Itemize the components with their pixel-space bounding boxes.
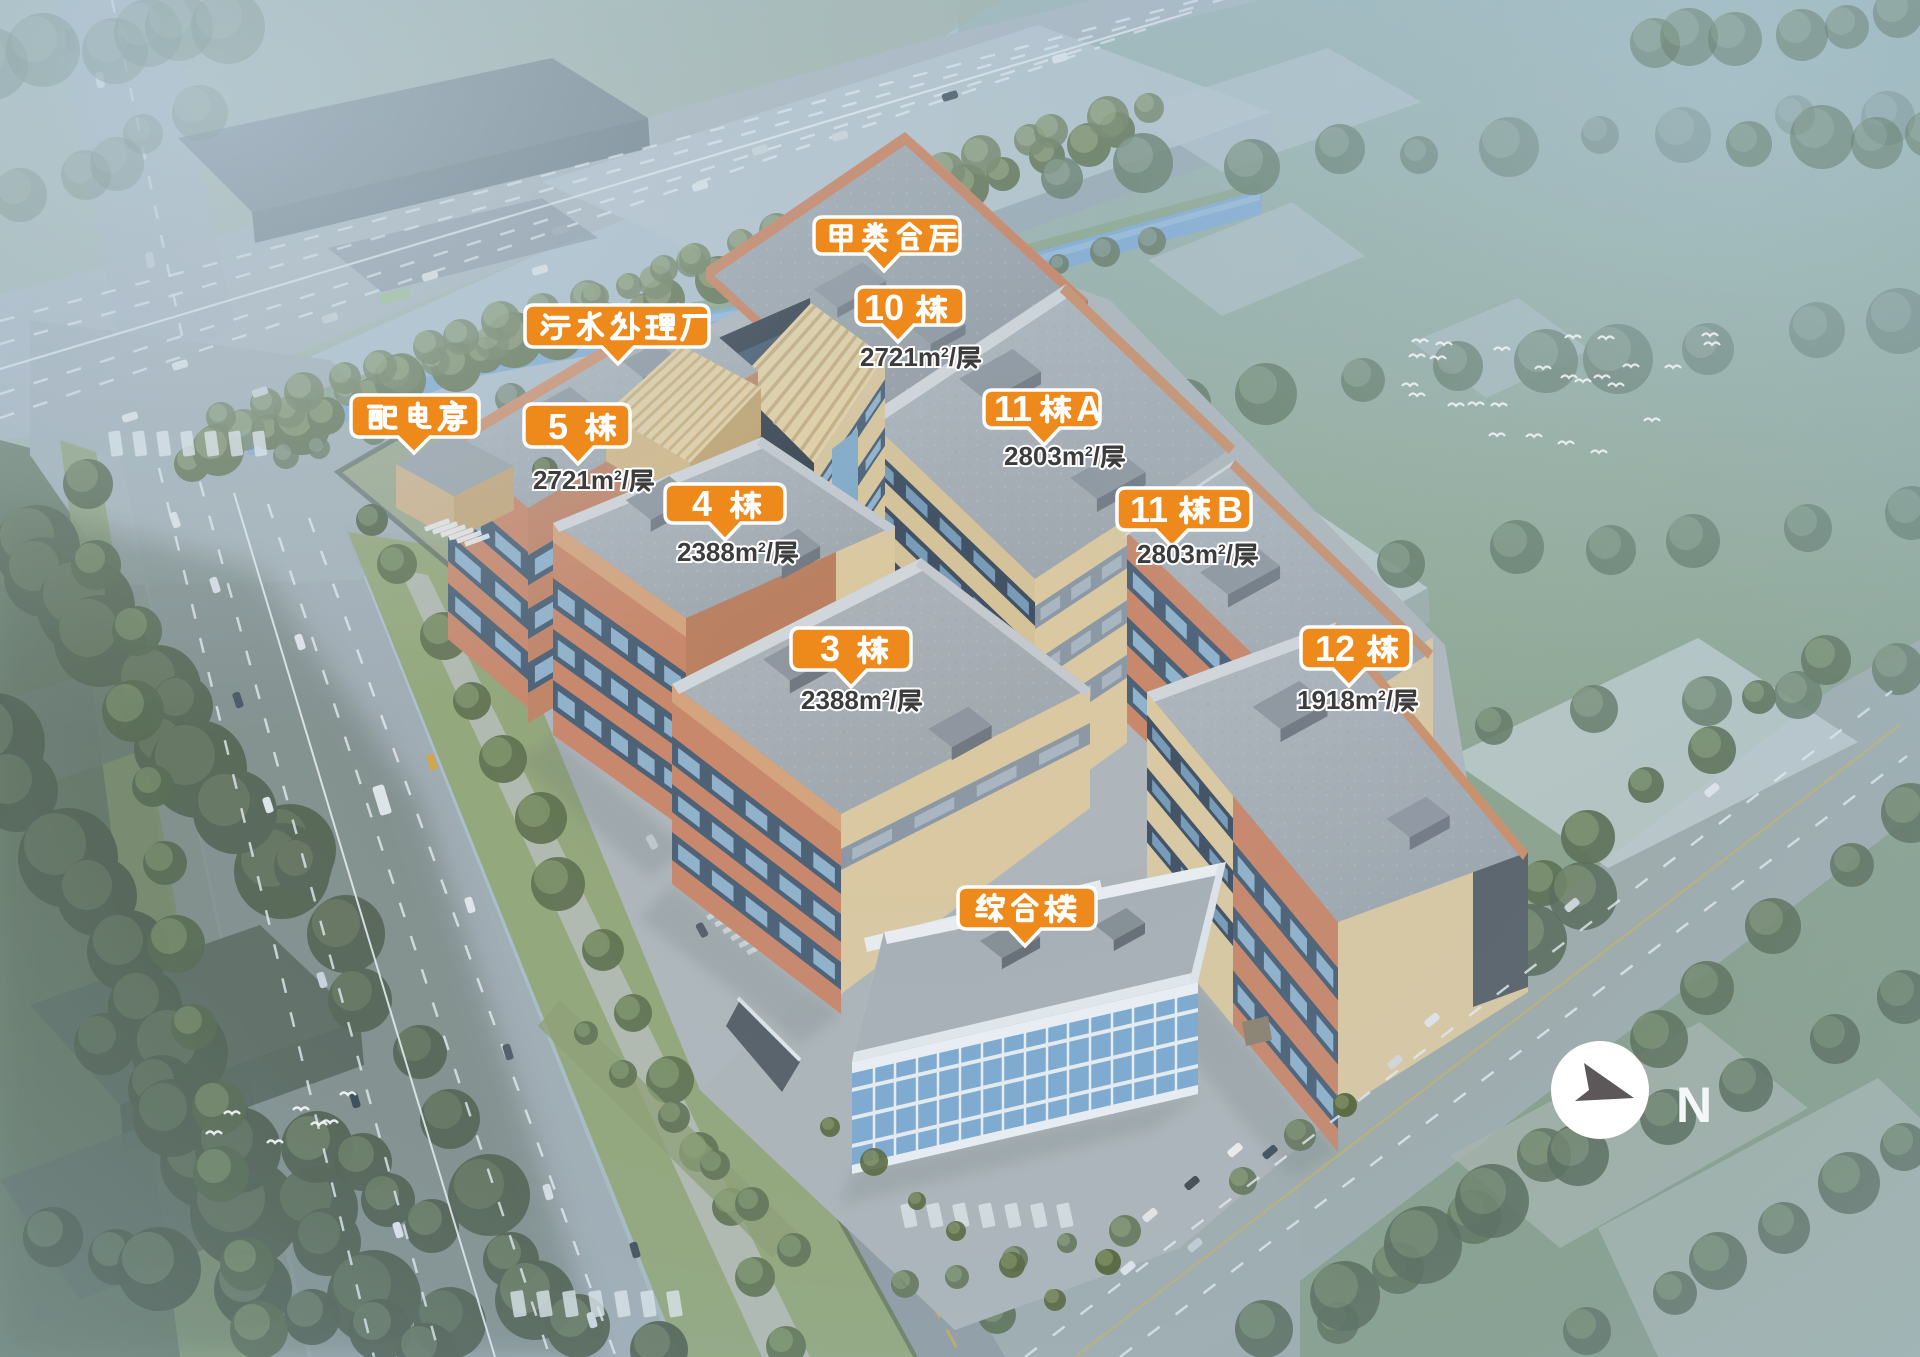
svg-text:5: 5 <box>548 406 568 447</box>
svg-text:11: 11 <box>1130 489 1168 530</box>
svg-text:11: 11 <box>994 388 1032 429</box>
svg-text:12: 12 <box>1315 628 1355 669</box>
svg-text:A: A <box>1076 388 1102 429</box>
svg-text:10: 10 <box>864 287 904 328</box>
svg-text:B: B <box>1217 489 1243 530</box>
svg-text:3: 3 <box>820 628 840 669</box>
svg-text:4: 4 <box>692 483 712 524</box>
svg-text:N: N <box>1676 1077 1712 1133</box>
